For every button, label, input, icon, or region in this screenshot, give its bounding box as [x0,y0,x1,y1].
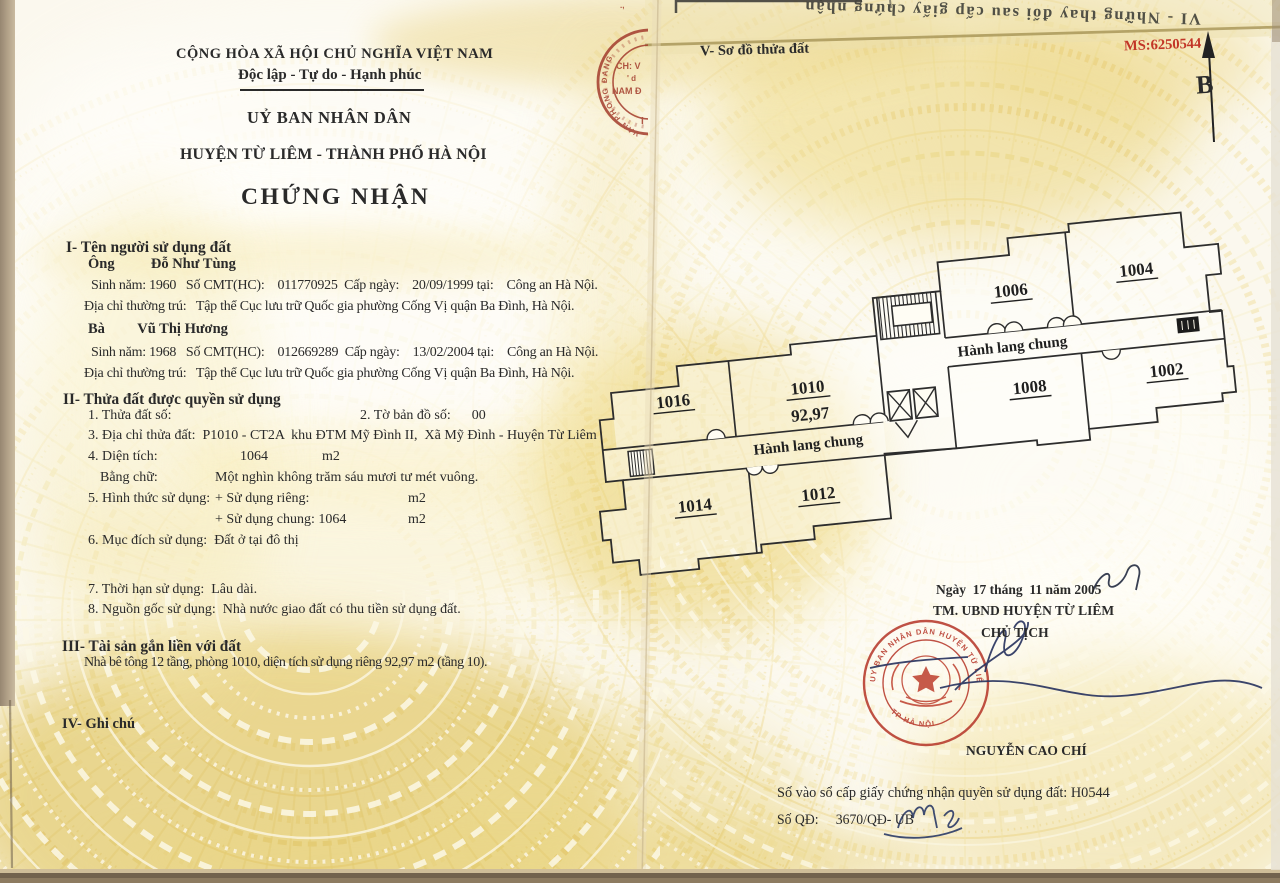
svg-text:NAM Đ: NAM Đ [612,86,642,96]
svg-text:1014: 1014 [677,494,713,516]
svg-text:1004: 1004 [1118,259,1154,281]
svg-text:' d: ' d [627,74,636,83]
svg-text:92,97: 92,97 [790,403,830,426]
svg-text:1006: 1006 [993,279,1029,301]
svg-text:CH: V: CH: V [616,61,641,71]
svg-text:1012: 1012 [800,483,836,505]
svg-text:1010: 1010 [790,376,826,398]
svg-text:1016: 1016 [655,390,691,412]
svg-text:1008: 1008 [1012,376,1048,398]
svg-text:.,: ., [620,1,624,10]
svg-text:1002: 1002 [1149,359,1185,381]
